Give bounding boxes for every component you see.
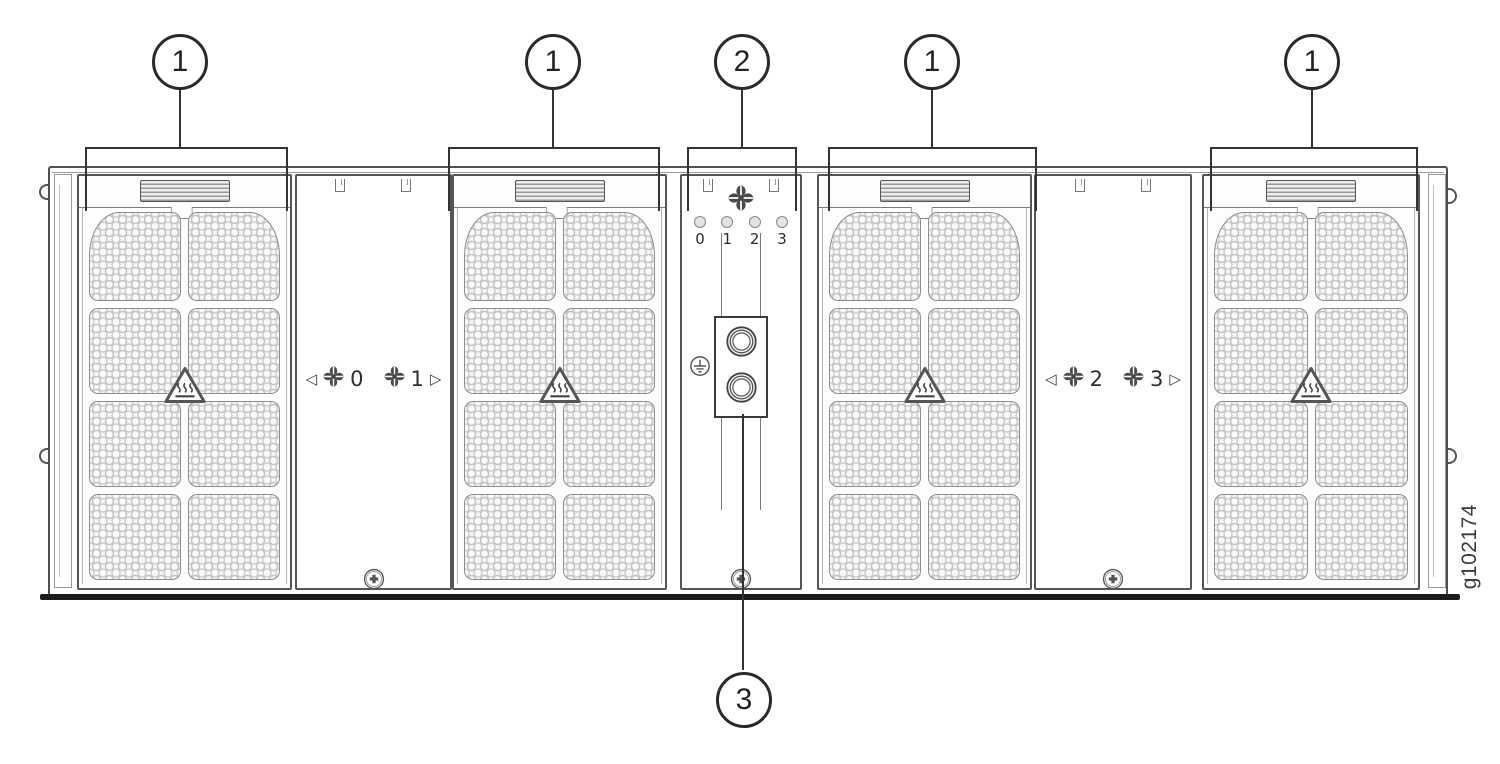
grounding-lug-block [714, 316, 768, 418]
mesh-panel [1315, 212, 1409, 301]
callout-leader-line [741, 90, 743, 147]
mesh-panel [829, 212, 921, 301]
callout-leader-line [179, 90, 181, 147]
mesh-panel [188, 212, 280, 301]
panel-hook [1075, 179, 1085, 192]
phillips-screw-icon[interactable] [730, 568, 752, 590]
led-indicator [721, 216, 733, 228]
callout-1-fan-tray: 1 [152, 34, 208, 90]
chassis-base-edge [40, 594, 1460, 600]
fan-icon [323, 366, 344, 392]
fan-number: 3 [1150, 367, 1163, 391]
callout-number: 1 [172, 45, 189, 79]
callout-1-fan-tray: 1 [525, 34, 581, 90]
panel-hook [1141, 179, 1151, 192]
mesh-panel [829, 494, 921, 580]
callout-leader-line [1311, 90, 1313, 147]
mesh-panel [464, 401, 556, 487]
mesh-panel [563, 212, 655, 301]
fan-icon [1123, 366, 1144, 392]
earth-ground-icon [689, 355, 711, 377]
chassis: ◁ 0 1 ▷ [48, 166, 1448, 600]
phillips-screw-icon[interactable] [1102, 568, 1124, 590]
chassis-rail-left [54, 174, 72, 588]
mesh-panel [89, 494, 181, 580]
mesh-panel [928, 494, 1020, 580]
callout-number: 1 [545, 45, 562, 79]
fan-icon [384, 366, 405, 392]
led-label: 0 [695, 230, 705, 248]
callout-bracket [85, 147, 288, 211]
callout-1-fan-tray: 1 [904, 34, 960, 90]
mesh-panel [563, 401, 655, 487]
fan-led-0: 0 [688, 216, 712, 248]
mesh-panel [1315, 494, 1409, 580]
callout-leader-line [552, 90, 554, 147]
led-indicator [694, 216, 706, 228]
panel-hook [335, 179, 345, 192]
fan-bay-label: ◁ 0 1 ▷ [297, 366, 450, 392]
hot-surface-warning-icon [538, 365, 582, 410]
mesh-panel [89, 212, 181, 301]
callout-bracket [828, 147, 1037, 211]
mesh-panel [464, 494, 556, 580]
fan-tray-3 [1202, 174, 1420, 590]
hardware-diagram-canvas: 1 1 2 1 1 [0, 0, 1500, 764]
arrow-left-icon: ◁ [306, 370, 318, 388]
callout-number: 1 [1304, 45, 1321, 79]
fan-bay-panel-2-3: ◁ 2 3 ▷ [1034, 174, 1192, 590]
fan-led-3: 3 [770, 216, 794, 248]
callout-bracket [687, 147, 797, 211]
panel-hook [401, 179, 411, 192]
callout-number: 3 [736, 683, 753, 717]
fan-tray-2 [817, 174, 1032, 590]
chassis-rail-right [1428, 174, 1446, 588]
mesh-panel [188, 494, 280, 580]
mesh-panel [188, 401, 280, 487]
fan-icon [1063, 366, 1084, 392]
mesh-panel [1315, 401, 1409, 487]
figure-id-label: g102174 [1458, 504, 1482, 589]
fan-led-panel: 0 1 2 3 [680, 174, 802, 590]
hot-surface-warning-icon [163, 365, 207, 410]
mesh-panel [1214, 494, 1308, 580]
fan-bay-panel-0-1: ◁ 0 1 ▷ [295, 174, 452, 590]
grounding-lug [725, 325, 758, 363]
fan-number: 2 [1090, 367, 1103, 391]
mesh-panel [928, 401, 1020, 487]
hot-surface-warning-icon [903, 365, 947, 410]
mesh-panel [89, 401, 181, 487]
mesh-panel [1214, 212, 1308, 301]
fan-number: 1 [411, 367, 424, 391]
led-indicator [776, 216, 788, 228]
hot-surface-warning-icon [1289, 365, 1333, 410]
callout-bracket [448, 147, 660, 211]
mesh-panel [1214, 401, 1308, 487]
callout-3-grounding-lug: 3 [716, 672, 772, 728]
chassis-pin [39, 448, 48, 464]
led-indicator [749, 216, 761, 228]
callout-number: 1 [924, 45, 941, 79]
phillips-screw-icon[interactable] [363, 568, 385, 590]
callout-2-fan-led-panel: 2 [714, 34, 770, 90]
fan-tray-1 [452, 174, 667, 590]
grounding-lug [725, 371, 758, 409]
callout-leader-line [742, 414, 744, 670]
arrow-right-icon: ▷ [430, 370, 442, 388]
mesh-panel [563, 494, 655, 580]
callout-bracket [1210, 147, 1418, 211]
fan-bay-label: ◁ 2 3 ▷ [1036, 366, 1190, 392]
led-label: 3 [777, 230, 787, 248]
callout-1-fan-tray: 1 [1284, 34, 1340, 90]
fan-number: 0 [350, 367, 363, 391]
mesh-panel [464, 212, 556, 301]
chassis-pin [39, 184, 48, 200]
arrow-left-icon: ◁ [1045, 370, 1057, 388]
chassis-pin [1448, 448, 1457, 464]
chassis-pin [1448, 188, 1457, 204]
fan-tray-0 [77, 174, 292, 590]
mesh-panel [829, 401, 921, 487]
mesh-panel [928, 212, 1020, 301]
arrow-right-icon: ▷ [1169, 370, 1181, 388]
callout-leader-line [931, 90, 933, 147]
callout-number: 2 [734, 45, 751, 79]
